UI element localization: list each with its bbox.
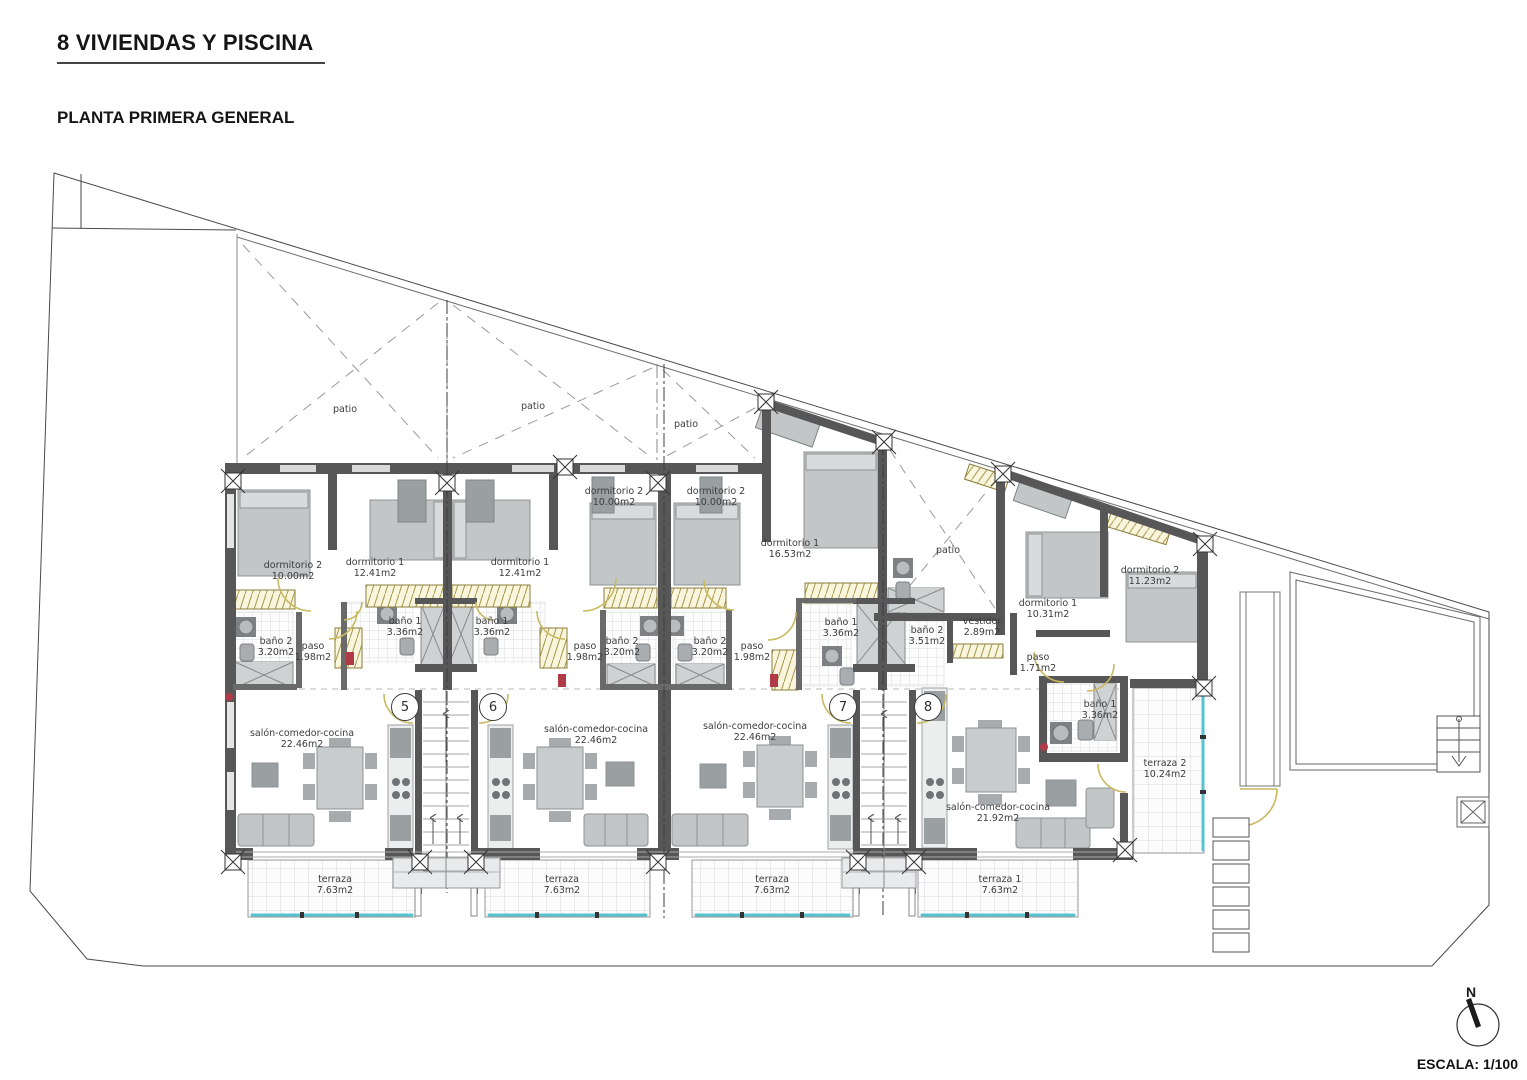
room-name: dormitorio 2 [1121,565,1179,576]
sheet-subtitle: PLANTA PRIMERA GENERAL [57,108,294,128]
room-name: paso [1027,652,1050,663]
room-label-bano2-u5: baño 23.20m2 [258,636,294,658]
unit-badge-6: 6 [479,693,507,721]
room-label-terraza1-u8: terraza 17.63m2 [979,874,1022,896]
room-label-dormitorio2-u5: dormitorio 210.00m2 [264,560,322,582]
room-name: terraza 1 [979,874,1022,885]
room-area: 16.53m2 [769,549,812,560]
room-name: terraza 2 [1144,758,1187,769]
room-name: baño 1 [825,617,858,628]
room-label-dormitorio1-u5: dormitorio 112.41m2 [346,557,404,579]
room-name: baño 2 [260,636,293,647]
room-label-bano1-u8: baño 13.36m2 [1082,699,1118,721]
room-label-terraza2-u8: terraza 210.24m2 [1144,758,1187,780]
room-area: 12.41m2 [354,568,397,579]
room-area: 3.51m2 [909,636,945,647]
room-area: 10.00m2 [272,571,315,582]
room-name: dormitorio 2 [264,560,322,571]
room-label-dormitorio2-u7: dormitorio 210.00m2 [687,486,745,508]
room-name: baño 1 [1084,699,1117,710]
room-name: patio [333,404,357,415]
unit-badge-5: 5 [391,693,419,721]
room-name: baño 2 [911,625,944,636]
room-area: 1.71m2 [1020,663,1056,674]
room-name: baño 1 [476,616,509,627]
room-area: 3.36m2 [474,627,510,638]
room-label-patio-3: patio [674,419,698,430]
room-name: dormitorio 2 [585,486,643,497]
room-area: 12.41m2 [499,568,542,579]
room-name: paso [574,641,597,652]
room-area: 10.00m2 [593,497,636,508]
north-label: N [1466,984,1476,1000]
room-label-bano1-u5: baño 13.36m2 [387,616,423,638]
room-label-paso-u8: paso1.71m2 [1020,652,1056,674]
room-area: 3.36m2 [823,628,859,639]
room-area: 10.00m2 [695,497,738,508]
unit-badge-7: 7 [829,693,857,721]
bottom-glazing [236,852,1133,857]
room-name: salón-comedor-cocina [544,724,648,735]
room-area: 22.46m2 [281,739,324,750]
plan-sheet: 8 VIVIENDAS Y PISCINA PLANTA PRIMERA GEN… [0,0,1527,1080]
room-label-bano2-u7: baño 23.20m2 [692,636,728,658]
room-area: 7.63m2 [754,885,790,896]
room-label-terraza-u5: terraza7.63m2 [317,874,353,896]
room-name: baño 2 [694,636,727,647]
room-label-dormitorio2-u8: dormitorio 211.23m2 [1121,565,1179,587]
room-area: 10.24m2 [1144,769,1187,780]
room-area: 2.89m2 [964,627,1000,638]
exterior-steps [1213,818,1249,952]
room-area: 7.63m2 [317,885,353,896]
room-label-patio-1: patio [333,404,357,415]
room-label-paso-u6: paso1.98m2 [567,641,603,663]
sheet-title: 8 VIVIENDAS Y PISCINA [57,30,325,64]
room-label-dormitorio1-u7: dormitorio 116.53m2 [761,538,819,560]
room-label-terraza-u6: terraza7.63m2 [544,874,580,896]
room-area: 3.20m2 [692,647,728,658]
room-name: dormitorio 1 [346,557,404,568]
room-area: 3.20m2 [604,647,640,658]
room-label-bano1-u6: baño 13.36m2 [474,616,510,638]
room-name: terraza [545,874,579,885]
room-name: paso [741,641,764,652]
room-area: 10.31m2 [1027,609,1070,620]
skylight-shaft [1457,797,1489,827]
room-area: 1.98m2 [295,652,331,663]
room-name: dormitorio 2 [687,486,745,497]
room-label-salon-u6: salón-comedor-cocina22.46m2 [544,724,648,746]
room-name: dormitorio 1 [491,557,549,568]
room-area: 11.23m2 [1129,576,1172,587]
room-name: salón-comedor-cocina [946,802,1050,813]
room-name: patio [936,545,960,556]
room-name: dormitorio 1 [1019,598,1077,609]
room-name: baño 2 [606,636,639,647]
room-label-bano2-u6: baño 23.20m2 [604,636,640,658]
room-area: 3.20m2 [258,647,294,658]
north-compass [1457,998,1499,1046]
room-label-dormitorio1-u8: dormitorio 110.31m2 [1019,598,1077,620]
room-label-paso-u7: paso1.98m2 [734,641,770,663]
room-label-bano2-u8: baño 23.51m2 [909,625,945,647]
room-label-patio-2: patio [521,401,545,412]
exterior-stair-down [1437,716,1480,772]
room-name: terraza [318,874,352,885]
room-name: vestidor [963,616,1002,627]
room-label-salon-u8: salón-comedor-cocina21.92m2 [946,802,1050,824]
room-label-dormitorio1-u6: dormitorio 112.41m2 [491,557,549,579]
room-name: baño 1 [389,616,422,627]
room-label-bano1-u7: baño 13.36m2 [823,617,859,639]
room-name: patio [521,401,545,412]
room-name: paso [302,641,325,652]
room-label-terraza-u7: terraza7.63m2 [754,874,790,896]
room-label-dormitorio2-u6: dormitorio 210.00m2 [585,486,643,508]
room-name: patio [674,419,698,430]
room-area: 1.98m2 [734,652,770,663]
room-name: dormitorio 1 [761,538,819,549]
room-area: 22.46m2 [734,732,777,743]
room-area: 22.46m2 [575,735,618,746]
room-label-patio-4: patio [936,545,960,556]
room-name: salón-comedor-cocina [703,721,807,732]
room-label-vestidor-u8: vestidor2.89m2 [963,616,1002,638]
room-name: salón-comedor-cocina [250,728,354,739]
unit-badge-8: 8 [914,693,942,721]
room-area: 3.36m2 [387,627,423,638]
room-name: terraza [755,874,789,885]
room-area: 21.92m2 [977,813,1020,824]
room-label-salon-u5: salón-comedor-cocina22.46m2 [250,728,354,750]
scale-label: ESCALA: 1/100 [1360,1056,1518,1072]
room-area: 1.98m2 [567,652,603,663]
room-area: 7.63m2 [982,885,1018,896]
room-label-salon-u7: salón-comedor-cocina22.46m2 [703,721,807,743]
room-area: 7.63m2 [544,885,580,896]
room-area: 3.36m2 [1082,710,1118,721]
exterior-walkway [1240,592,1280,786]
room-label-paso-u5: paso1.98m2 [295,641,331,663]
